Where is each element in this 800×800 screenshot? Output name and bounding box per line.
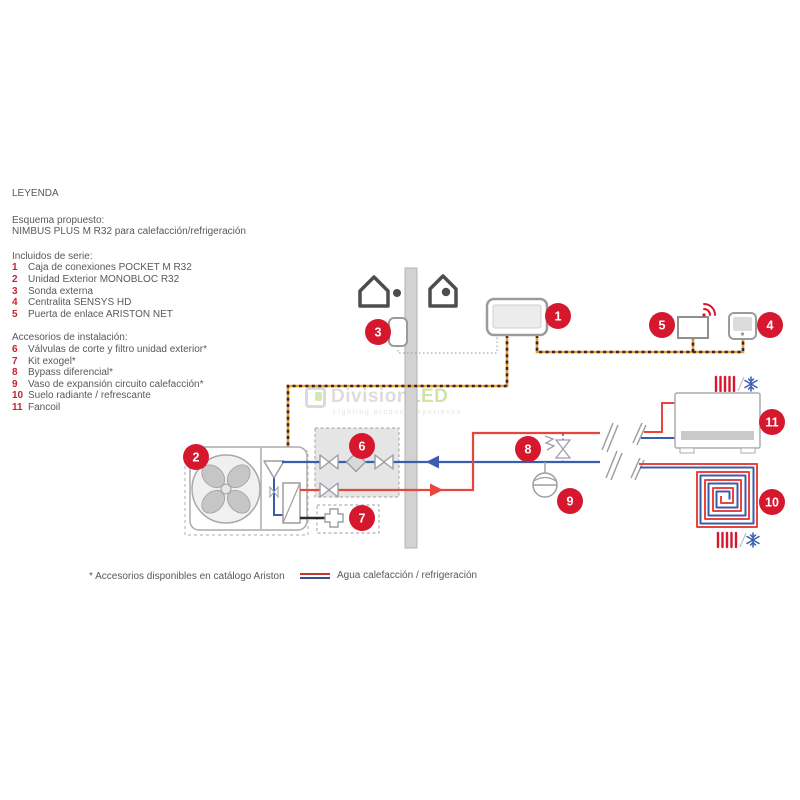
badge-3: 3 — [365, 319, 391, 345]
badge-10: 10 — [759, 489, 785, 515]
radiator-icon — [716, 377, 734, 391]
included-list: Incluidos de serie: 1Caja de conexiones … — [12, 251, 352, 321]
outdoor-sensor — [389, 318, 407, 346]
badge-11: 11 — [759, 409, 785, 435]
badge-5: 5 — [649, 312, 675, 338]
legend-item: 5Puerta de enlace ARISTON NET — [12, 309, 352, 321]
legend-title: LEYENDA — [12, 188, 352, 200]
legend-item: 7Kit exogel* — [12, 356, 352, 368]
bypass-valve — [545, 433, 570, 462]
flow-arrow-icon — [430, 484, 443, 497]
radiant-floor-coil — [639, 464, 757, 527]
snowflake-icon — [745, 377, 757, 391]
outdoor-house-icon — [360, 277, 401, 306]
badge-9: 9 — [557, 488, 583, 514]
return-arrow-icon — [426, 456, 439, 469]
accessories-footnote: * Accesorios disponibles en catálogo Ari… — [89, 571, 285, 582]
spring-icon — [545, 436, 554, 450]
badge-4: 4 — [757, 312, 783, 338]
svg-text:7: 7 — [359, 512, 366, 526]
legend-item: 4Centralita SENSYS HD — [12, 297, 352, 309]
legend-item: 10Suelo radiante / refrescante — [12, 390, 352, 402]
water-line-legend: Agua calefacción / refrigeración — [300, 570, 477, 581]
water-line-symbol — [300, 573, 330, 579]
wall — [405, 268, 417, 548]
badge-2: 2 — [183, 444, 209, 470]
legend-item: 8Bypass diferencial* — [12, 367, 352, 379]
svg-text:6: 6 — [359, 440, 366, 454]
slash-divider — [738, 377, 744, 391]
wifi-icon — [702, 304, 715, 317]
legend: LEYENDA Esquema propuesto: NIMBUS PLUS M… — [12, 188, 352, 426]
exogel-valve-icon — [325, 509, 343, 527]
legend-item: 6Válvulas de corte y filtro unidad exter… — [12, 344, 352, 356]
legend-item: 1Caja de conexiones POCKET M R32 — [12, 262, 352, 274]
svg-text:10: 10 — [765, 496, 779, 510]
badge-7: 7 — [349, 505, 375, 531]
water-line-label: Agua calefacción / refrigeración — [337, 570, 477, 581]
svg-text:5: 5 — [659, 319, 666, 333]
legend-item: 2Unidad Exterior MONOBLOC R32 — [12, 274, 352, 286]
snowflake-icon — [747, 533, 759, 547]
badge-1: 1 — [545, 303, 571, 329]
accessories-list: Accesorios de instalación: 6Válvulas de … — [12, 332, 352, 413]
legend-item: 9Vaso de expansión circuito calefacción* — [12, 379, 352, 391]
svg-text:2: 2 — [193, 451, 200, 465]
svg-text:8: 8 — [525, 443, 532, 457]
heat-exchanger-icon — [283, 483, 300, 523]
indoor-house-icon — [430, 276, 456, 306]
svg-text:1: 1 — [555, 310, 562, 324]
page: DivisionLED Lighting product experience … — [0, 0, 800, 800]
included-header: Incluidos de serie: — [12, 251, 352, 263]
legend-item: 3Sonda externa — [12, 286, 352, 298]
svg-text:4: 4 — [767, 319, 774, 333]
svg-text:11: 11 — [765, 416, 778, 430]
svg-text:9: 9 — [567, 495, 574, 509]
badge-8: 8 — [515, 436, 541, 462]
fancoil — [641, 393, 760, 453]
pipe-break-marks — [602, 423, 646, 480]
scheme-description: Esquema propuesto: NIMBUS PLUS M R32 par… — [12, 215, 352, 238]
radiator-icon — [718, 533, 736, 547]
accessories-header: Accesorios de instalación: — [12, 332, 352, 344]
thermostat — [729, 313, 756, 339]
gateway-box — [678, 317, 708, 338]
svg-text:3: 3 — [375, 326, 382, 340]
legend-item: 11Fancoil — [12, 402, 352, 414]
slash-divider — [740, 533, 746, 547]
badge-6: 6 — [349, 433, 375, 459]
connection-box — [487, 299, 547, 335]
expansion-vessel — [533, 462, 557, 497]
